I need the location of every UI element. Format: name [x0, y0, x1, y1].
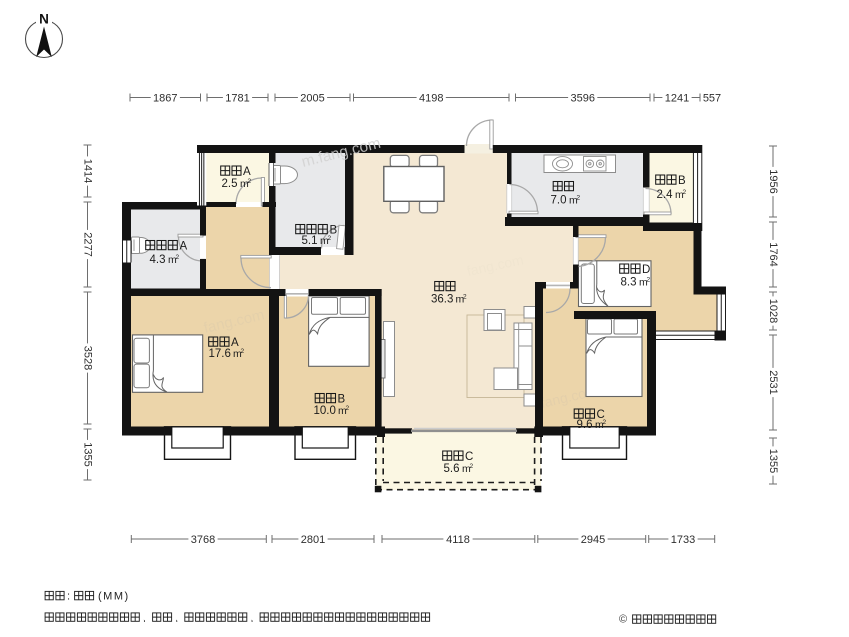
svg-text:1867: 1867	[153, 93, 177, 105]
svg-text:2: 2	[176, 254, 180, 261]
svg-text:1241: 1241	[665, 93, 689, 105]
svg-text:A: A	[180, 240, 188, 252]
svg-text:1764: 1764	[767, 242, 779, 266]
svg-text:2.4: 2.4	[657, 189, 674, 201]
svg-text:2801: 2801	[301, 534, 325, 546]
svg-text:557: 557	[703, 93, 721, 105]
svg-text:4198: 4198	[419, 93, 443, 105]
svg-text:B: B	[678, 175, 686, 187]
svg-text:2: 2	[346, 405, 350, 412]
svg-text:2277: 2277	[82, 232, 94, 256]
svg-text:2: 2	[683, 189, 687, 196]
svg-text:1355: 1355	[767, 449, 779, 473]
svg-text:10.0: 10.0	[314, 405, 336, 417]
svg-text:4.3: 4.3	[150, 254, 166, 266]
svg-text:2: 2	[463, 294, 467, 301]
svg-text:1781: 1781	[225, 93, 249, 105]
svg-text::: :	[67, 591, 70, 603]
svg-text:36.3: 36.3	[431, 294, 453, 306]
svg-text:2: 2	[470, 463, 474, 470]
svg-text:2: 2	[241, 348, 245, 355]
svg-text:D: D	[642, 264, 650, 276]
svg-text:2: 2	[577, 195, 581, 202]
svg-text:2005: 2005	[300, 93, 324, 105]
svg-text:©: ©	[619, 614, 627, 626]
svg-text:7.0: 7.0	[551, 195, 567, 207]
svg-text:2: 2	[647, 277, 651, 284]
svg-text:3528: 3528	[82, 346, 94, 370]
svg-text:2.5: 2.5	[222, 178, 238, 190]
svg-text:N: N	[39, 12, 49, 27]
svg-text:5.6: 5.6	[444, 463, 460, 475]
svg-text:2: 2	[328, 235, 332, 242]
svg-text:4118: 4118	[446, 534, 470, 546]
svg-text:5.1: 5.1	[302, 235, 318, 247]
svg-text:1028: 1028	[767, 299, 779, 323]
svg-text:3768: 3768	[191, 534, 215, 546]
svg-text:1956: 1956	[767, 169, 779, 193]
svg-text:C: C	[465, 451, 473, 463]
svg-text:(MM): (MM)	[98, 591, 130, 603]
svg-text:9.6: 9.6	[577, 419, 593, 431]
svg-text:A: A	[243, 166, 251, 178]
svg-text:8.3: 8.3	[621, 277, 637, 289]
svg-text:1414: 1414	[82, 159, 94, 183]
svg-text:2: 2	[248, 178, 252, 185]
svg-text:2945: 2945	[581, 534, 605, 546]
svg-text:2: 2	[603, 419, 607, 426]
svg-text:3596: 3596	[571, 93, 595, 105]
svg-text:B: B	[338, 394, 346, 406]
svg-text:1733: 1733	[671, 534, 695, 546]
svg-text:1355: 1355	[82, 442, 94, 466]
svg-text:17.6: 17.6	[209, 348, 231, 360]
svg-text:2531: 2531	[767, 370, 779, 394]
